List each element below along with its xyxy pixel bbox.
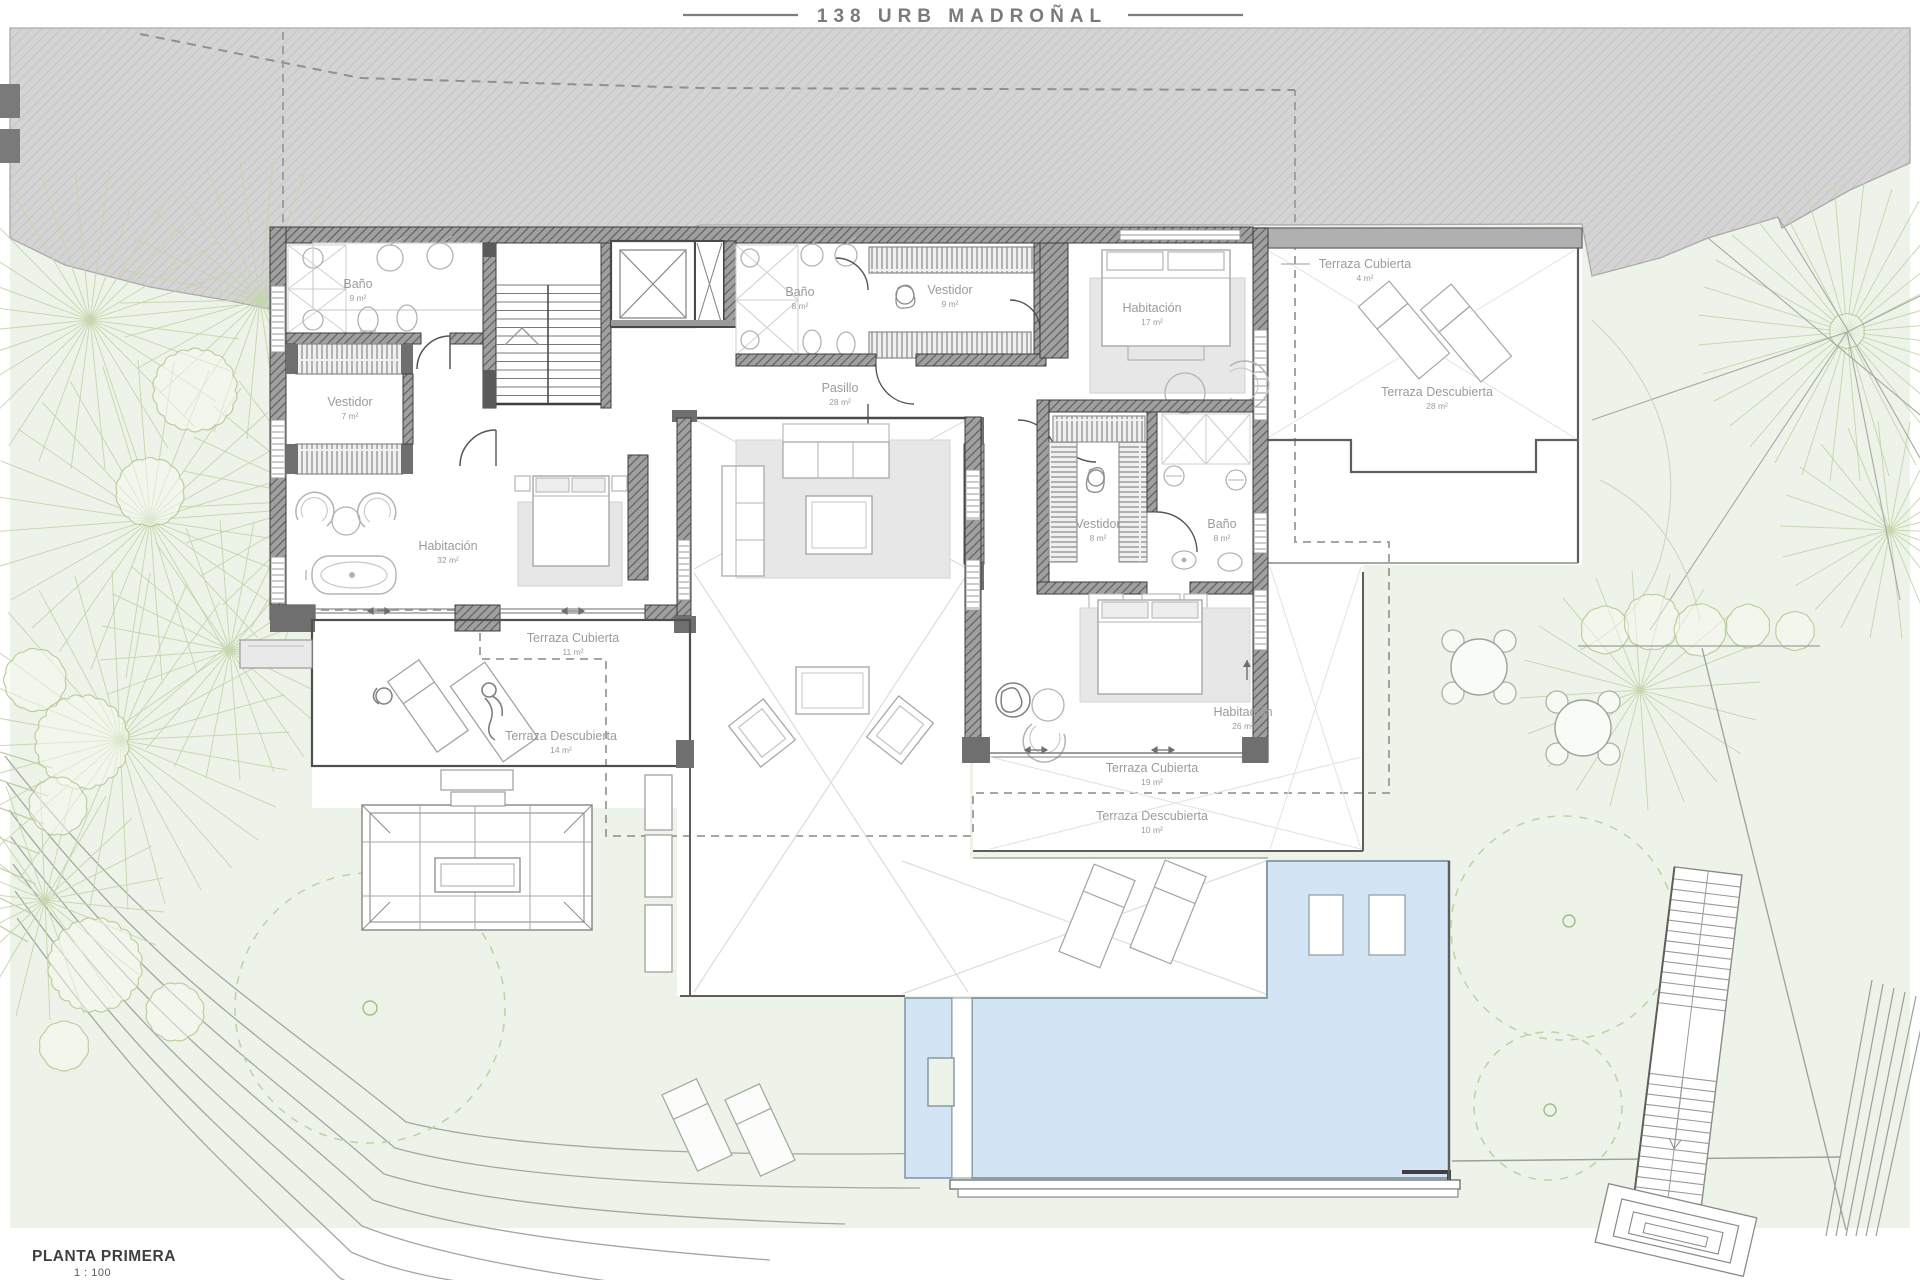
svg-text:138 URB MADROÑAL: 138 URB MADROÑAL bbox=[817, 5, 1107, 27]
svg-text:8 m²: 8 m² bbox=[1090, 533, 1107, 543]
svg-text:Vestidor: Vestidor bbox=[1075, 517, 1120, 531]
svg-text:Habitación: Habitación bbox=[1213, 705, 1272, 719]
svg-text:8 m²: 8 m² bbox=[792, 301, 809, 311]
svg-text:19 m²: 19 m² bbox=[1141, 777, 1163, 787]
svg-text:14 m²: 14 m² bbox=[550, 745, 572, 755]
svg-text:Vestidor: Vestidor bbox=[927, 283, 972, 297]
svg-text:Habitación: Habitación bbox=[1122, 301, 1181, 315]
svg-text:Vestidor: Vestidor bbox=[327, 395, 372, 409]
svg-text:4 m²: 4 m² bbox=[1357, 273, 1374, 283]
svg-text:Terraza Cubierta: Terraza Cubierta bbox=[527, 631, 619, 645]
svg-text:1 : 100: 1 : 100 bbox=[74, 1267, 111, 1279]
svg-text:Terraza Descubierta: Terraza Descubierta bbox=[505, 729, 617, 743]
svg-text:11 m²: 11 m² bbox=[562, 647, 583, 657]
svg-text:Terraza Descubierta: Terraza Descubierta bbox=[1096, 809, 1208, 823]
svg-text:Baño: Baño bbox=[785, 285, 814, 299]
svg-text:10 m²: 10 m² bbox=[1141, 825, 1163, 835]
svg-text:28 m²: 28 m² bbox=[1426, 401, 1448, 411]
svg-text:Baño: Baño bbox=[343, 277, 372, 291]
svg-text:9 m²: 9 m² bbox=[350, 293, 367, 303]
svg-text:9 m²: 9 m² bbox=[942, 299, 959, 309]
svg-text:Baño: Baño bbox=[1207, 517, 1236, 531]
svg-text:PLANTA PRIMERA: PLANTA PRIMERA bbox=[32, 1248, 176, 1265]
svg-text:32 m²: 32 m² bbox=[437, 555, 459, 565]
svg-text:8 m²: 8 m² bbox=[1214, 533, 1231, 543]
svg-text:26 m²: 26 m² bbox=[1232, 721, 1254, 731]
svg-text:Terraza Cubierta: Terraza Cubierta bbox=[1319, 257, 1411, 271]
svg-text:Terraza Cubierta: Terraza Cubierta bbox=[1106, 761, 1198, 775]
svg-text:Pasillo: Pasillo bbox=[822, 381, 859, 395]
svg-text:Terraza Descubierta: Terraza Descubierta bbox=[1381, 385, 1493, 399]
svg-text:17 m²: 17 m² bbox=[1141, 317, 1163, 327]
svg-text:7 m²: 7 m² bbox=[342, 411, 359, 421]
svg-text:28 m²: 28 m² bbox=[829, 397, 851, 407]
svg-text:Habitación: Habitación bbox=[418, 539, 477, 553]
